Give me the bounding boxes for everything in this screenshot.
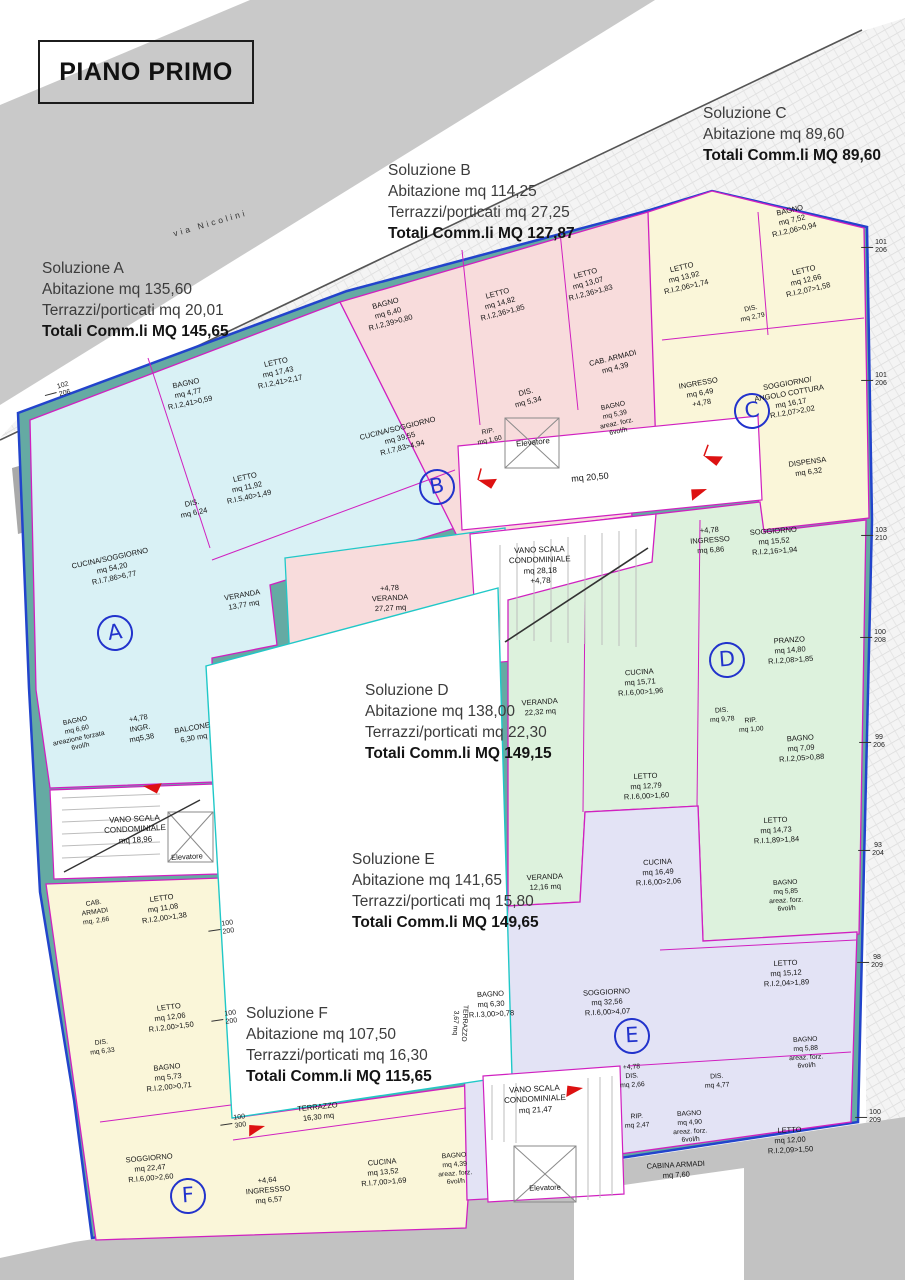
solution-a-abitazione: Abitazione mq 135,60 xyxy=(42,279,332,300)
solution-c-summary: Soluzione C Abitazione mq 89,60 Totali C… xyxy=(703,103,905,166)
solution-e-name: Soluzione E xyxy=(352,849,642,870)
solution-f-abitazione: Abitazione mq 107,50 xyxy=(246,1024,536,1045)
edge-marker-inner-3: 100 300 xyxy=(233,1113,247,1131)
solution-c-name: Soluzione C xyxy=(703,103,905,124)
solution-d-summary: Soluzione D Abitazione mq 138,00 Terrazz… xyxy=(365,680,655,764)
solution-f-summary: Soluzione F Abitazione mq 107,50 Terrazz… xyxy=(246,1003,536,1087)
edge-marker-right-3: 103 210 xyxy=(875,527,887,543)
solution-f-totale: Totali Comm.li MQ 115,65 xyxy=(246,1066,536,1087)
solution-a-name: Soluzione A xyxy=(42,258,332,279)
edge-marker-inner-1: 100 200 xyxy=(221,919,235,937)
edge-marker-right-6: 93 204 xyxy=(872,842,884,858)
solution-a-summary: Soluzione A Abitazione mq 135,60 Terrazz… xyxy=(42,258,332,342)
solution-d-terrazzi: Terrazzi/porticati mq 22,30 xyxy=(365,722,655,743)
solution-f-terrazzi: Terrazzi/porticati mq 16,30 xyxy=(246,1045,536,1066)
edge-marker-right-5: 99 206 xyxy=(873,734,885,750)
solution-e-summary: Soluzione E Abitazione mq 141,65 Terrazz… xyxy=(352,849,642,933)
plan-title: PIANO PRIMO xyxy=(59,60,233,85)
floor-plan-page: PIANO PRIMO via Nicolini Soluzione A Abi… xyxy=(0,0,905,1280)
edge-marker-inner-2: 100 200 xyxy=(224,1009,238,1027)
edge-marker-right-2: 101 206 xyxy=(875,372,887,388)
solution-f-name: Soluzione F xyxy=(246,1003,536,1024)
solution-d-abitazione: Abitazione mq 138,00 xyxy=(365,701,655,722)
solution-c-totale: Totali Comm.li MQ 89,60 xyxy=(703,145,905,166)
solution-b-abitazione: Abitazione mq 114,25 xyxy=(388,181,678,202)
edge-marker-right-7: 98 209 xyxy=(871,954,883,970)
solution-a-totale: Totali Comm.li MQ 145,65 xyxy=(42,321,332,342)
solution-b-terrazzi: Terrazzi/porticati mq 27,25 xyxy=(388,202,678,223)
plan-title-box: PIANO PRIMO xyxy=(38,40,254,104)
solution-e-abitazione: Abitazione mq 141,65 xyxy=(352,870,642,891)
solution-b-totale: Totali Comm.li MQ 127,87 xyxy=(388,223,678,244)
edge-marker-right-8: 100 209 xyxy=(869,1109,881,1125)
solution-d-name: Soluzione D xyxy=(365,680,655,701)
solution-b-summary: Soluzione B Abitazione mq 114,25 Terrazz… xyxy=(388,160,678,244)
sidewalk-right xyxy=(866,226,905,1132)
solution-e-totale: Totali Comm.li MQ 149,65 xyxy=(352,912,642,933)
solution-a-terrazzi: Terrazzi/porticati mq 20,01 xyxy=(42,300,332,321)
edge-marker-right-4: 100 208 xyxy=(874,629,886,645)
solution-e-terrazzi: Terrazzi/porticati mq 15,80 xyxy=(352,891,642,912)
solution-c-abitazione: Abitazione mq 89,60 xyxy=(703,124,905,145)
edge-marker-right-1: 101 206 xyxy=(875,239,887,255)
solution-b-name: Soluzione B xyxy=(388,160,678,181)
solution-d-totale: Totali Comm.li MQ 149,15 xyxy=(365,743,655,764)
